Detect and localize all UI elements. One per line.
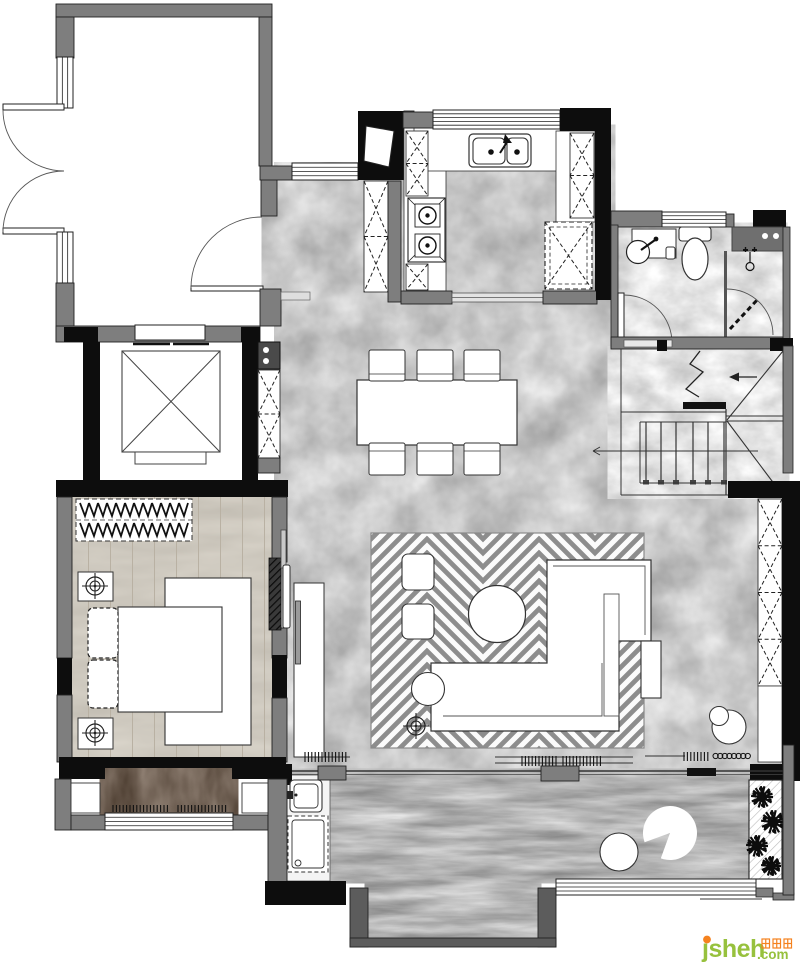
svg-text:.com: .com xyxy=(757,947,789,962)
